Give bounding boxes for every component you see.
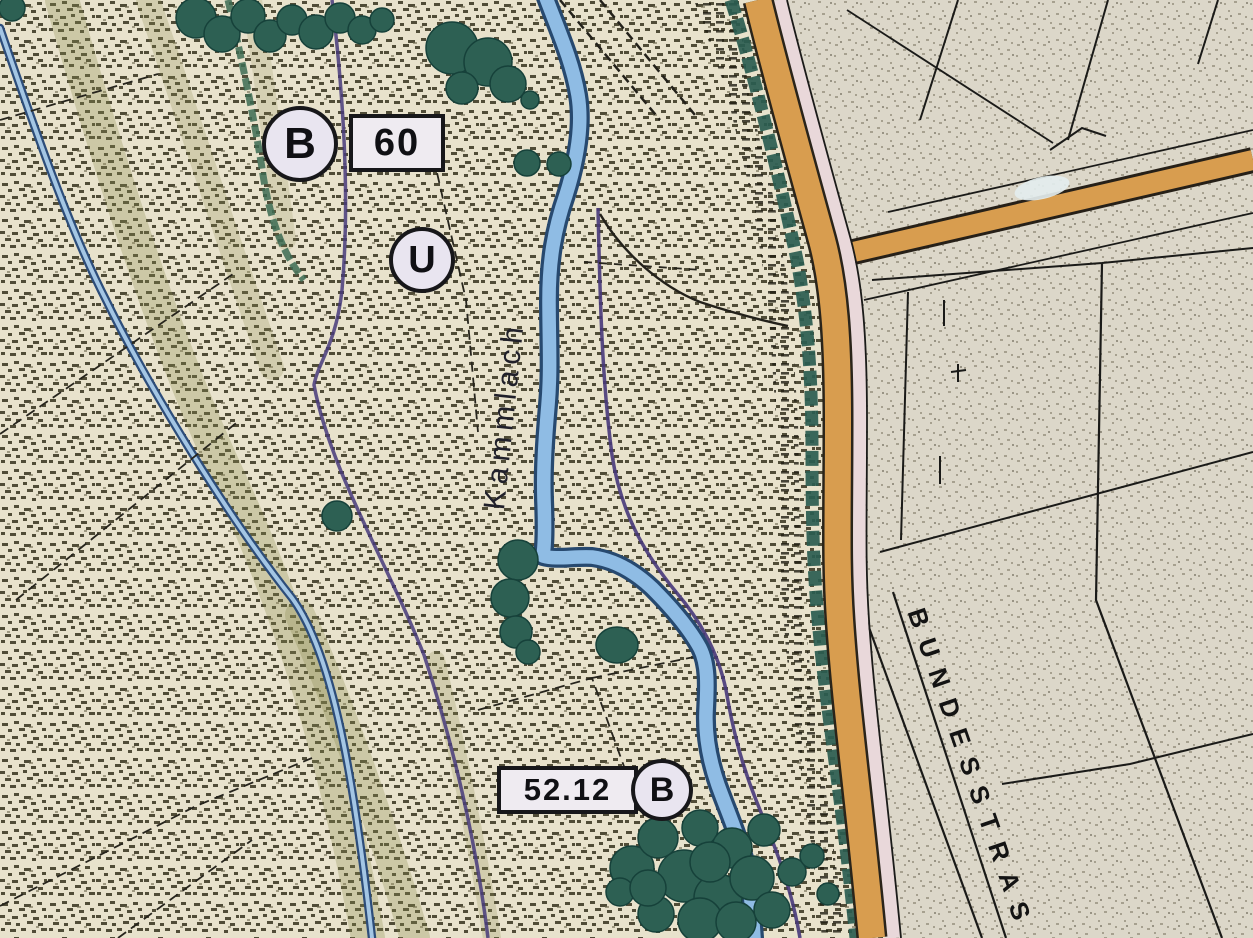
route-number-box: 60	[349, 114, 445, 172]
u-marker-badge: U	[389, 227, 455, 293]
route-class-badge-bottom: B	[631, 759, 693, 821]
route-number-label: 60	[374, 122, 420, 165]
u-marker-label: U	[408, 239, 435, 282]
measure-value-label: 52.12	[524, 772, 612, 808]
route-class-badge-top-label: B	[284, 119, 316, 169]
route-class-badge-bottom-label: B	[650, 771, 675, 810]
measure-value-box: 52.12	[497, 766, 638, 814]
route-class-badge-top: B	[262, 106, 338, 182]
map-canvas[interactable]: B 60 U 52.12 B Kammlach BUNDESSTRAS	[0, 0, 1253, 938]
